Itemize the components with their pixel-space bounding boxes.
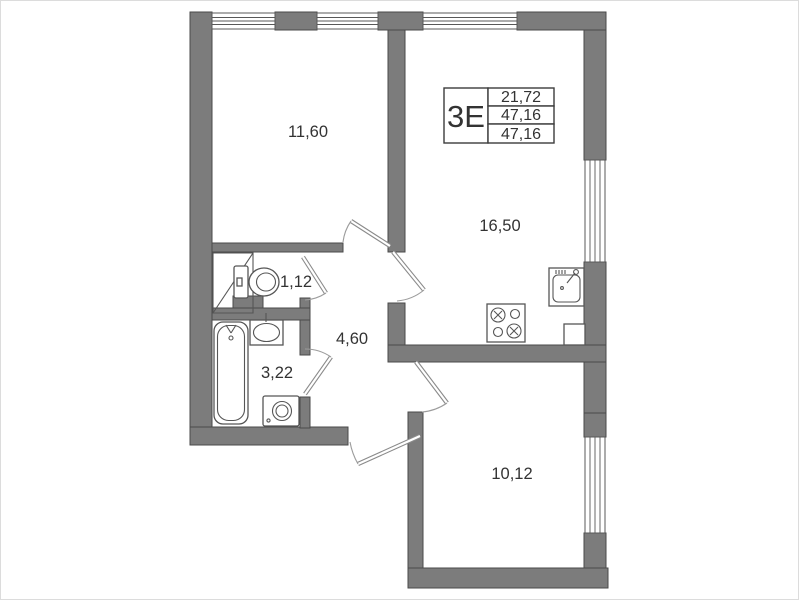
door-bedroom2 xyxy=(416,362,447,412)
unit-label: 3Е xyxy=(447,99,485,134)
wall-segment-right-pier-a xyxy=(584,413,606,437)
toilet-bowl xyxy=(249,268,279,296)
label-bedroom-area: 11,60 xyxy=(288,123,328,141)
wall-segment-bath-right xyxy=(300,397,310,428)
wall-segment-top-pier xyxy=(275,12,317,30)
washer-body xyxy=(263,396,299,426)
kitchen-sink-icon xyxy=(549,268,584,306)
window-right-bedroom2 xyxy=(585,437,605,533)
stove-icon xyxy=(487,304,525,342)
unit-table-value: 47,16 xyxy=(501,126,541,143)
window-right-kitchen xyxy=(585,160,605,262)
label-living-kitchen-area: 16,50 xyxy=(479,217,520,235)
unit-info-table: 3Е 21,72 47,16 47,16 xyxy=(444,88,554,143)
wall-segment-wc-bath-divider xyxy=(212,308,310,320)
wall-segment-top-tee xyxy=(378,12,423,30)
wall-segment-right-upper xyxy=(584,30,606,160)
washing-machine-icon xyxy=(263,396,299,426)
label-bathroom-area: 3,22 xyxy=(261,364,293,382)
wall-segment-left-exterior xyxy=(190,12,212,445)
toilet-icon xyxy=(234,266,279,298)
wall-segment-bath-bottom xyxy=(190,427,348,445)
wall-segment-interior-a-stub xyxy=(388,303,405,345)
window-top-2 xyxy=(317,13,378,29)
floor-plan-svg: 11,60 16,50 1,12 4,60 3,22 10,12 3Е 21,7… xyxy=(0,0,799,600)
door-leaf xyxy=(416,362,447,403)
bathtub-icon xyxy=(214,322,248,424)
label-wc-area: 1,12 xyxy=(280,273,312,291)
bathtub-outer xyxy=(214,322,248,424)
wall-segment-right-pier-b xyxy=(584,533,606,568)
wall-segment-wc-right xyxy=(300,298,310,355)
unit-table-value: 21,72 xyxy=(501,89,541,106)
wall-segment-bottom xyxy=(408,568,608,588)
wall-segment-bedroom2-left xyxy=(408,412,423,568)
label-bedroom2-area: 10,12 xyxy=(491,465,532,483)
wall-segment-bedroom-bottom xyxy=(212,243,343,252)
room-bedroom2 xyxy=(423,412,584,568)
wall-segment-interior-a xyxy=(388,30,405,252)
wall-segment-kitchen-bottom xyxy=(388,345,606,362)
vent-shaft-icon xyxy=(564,324,585,345)
window-top-3 xyxy=(423,13,517,29)
wall-segment-top-right xyxy=(517,12,606,30)
door-swing-arc xyxy=(422,403,447,412)
window-top-1 xyxy=(212,13,275,29)
label-hall-area: 4,60 xyxy=(336,330,368,348)
toilet-button xyxy=(237,278,242,286)
door-swing-arc xyxy=(350,442,358,464)
wall-segment-right-mid xyxy=(584,262,606,413)
floor-plan-image: 11,60 16,50 1,12 4,60 3,22 10,12 3Е 21,7… xyxy=(0,0,799,600)
unit-table-value: 47,16 xyxy=(501,107,541,124)
